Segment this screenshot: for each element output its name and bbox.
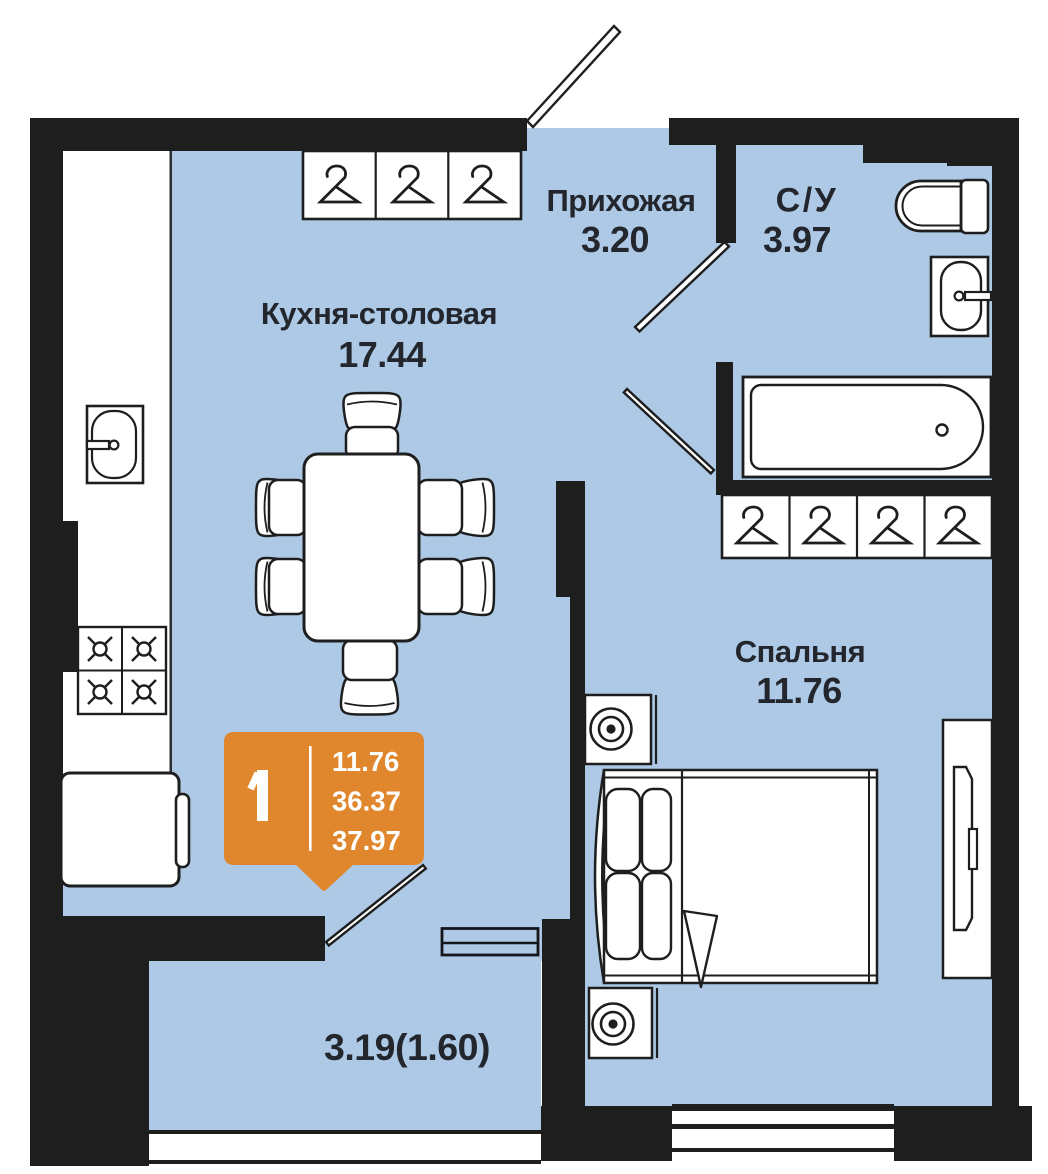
svg-text:11.76: 11.76	[756, 670, 842, 711]
svg-text:17.44: 17.44	[338, 334, 426, 375]
svg-text:Кухня-столовая: Кухня-столовая	[261, 296, 497, 331]
svg-text:3.97: 3.97	[763, 219, 831, 260]
svg-text:С/У: С/У	[776, 182, 839, 220]
svg-text:3.19(1.60): 3.19(1.60)	[324, 1026, 490, 1068]
svg-text:11.76: 11.76	[332, 746, 399, 777]
svg-text:37.97: 37.97	[332, 825, 401, 856]
svg-text:Спальня: Спальня	[735, 634, 865, 669]
svg-text:36.37: 36.37	[332, 786, 401, 817]
svg-text:Прихожая: Прихожая	[547, 183, 696, 218]
svg-text:3.20: 3.20	[581, 219, 649, 260]
